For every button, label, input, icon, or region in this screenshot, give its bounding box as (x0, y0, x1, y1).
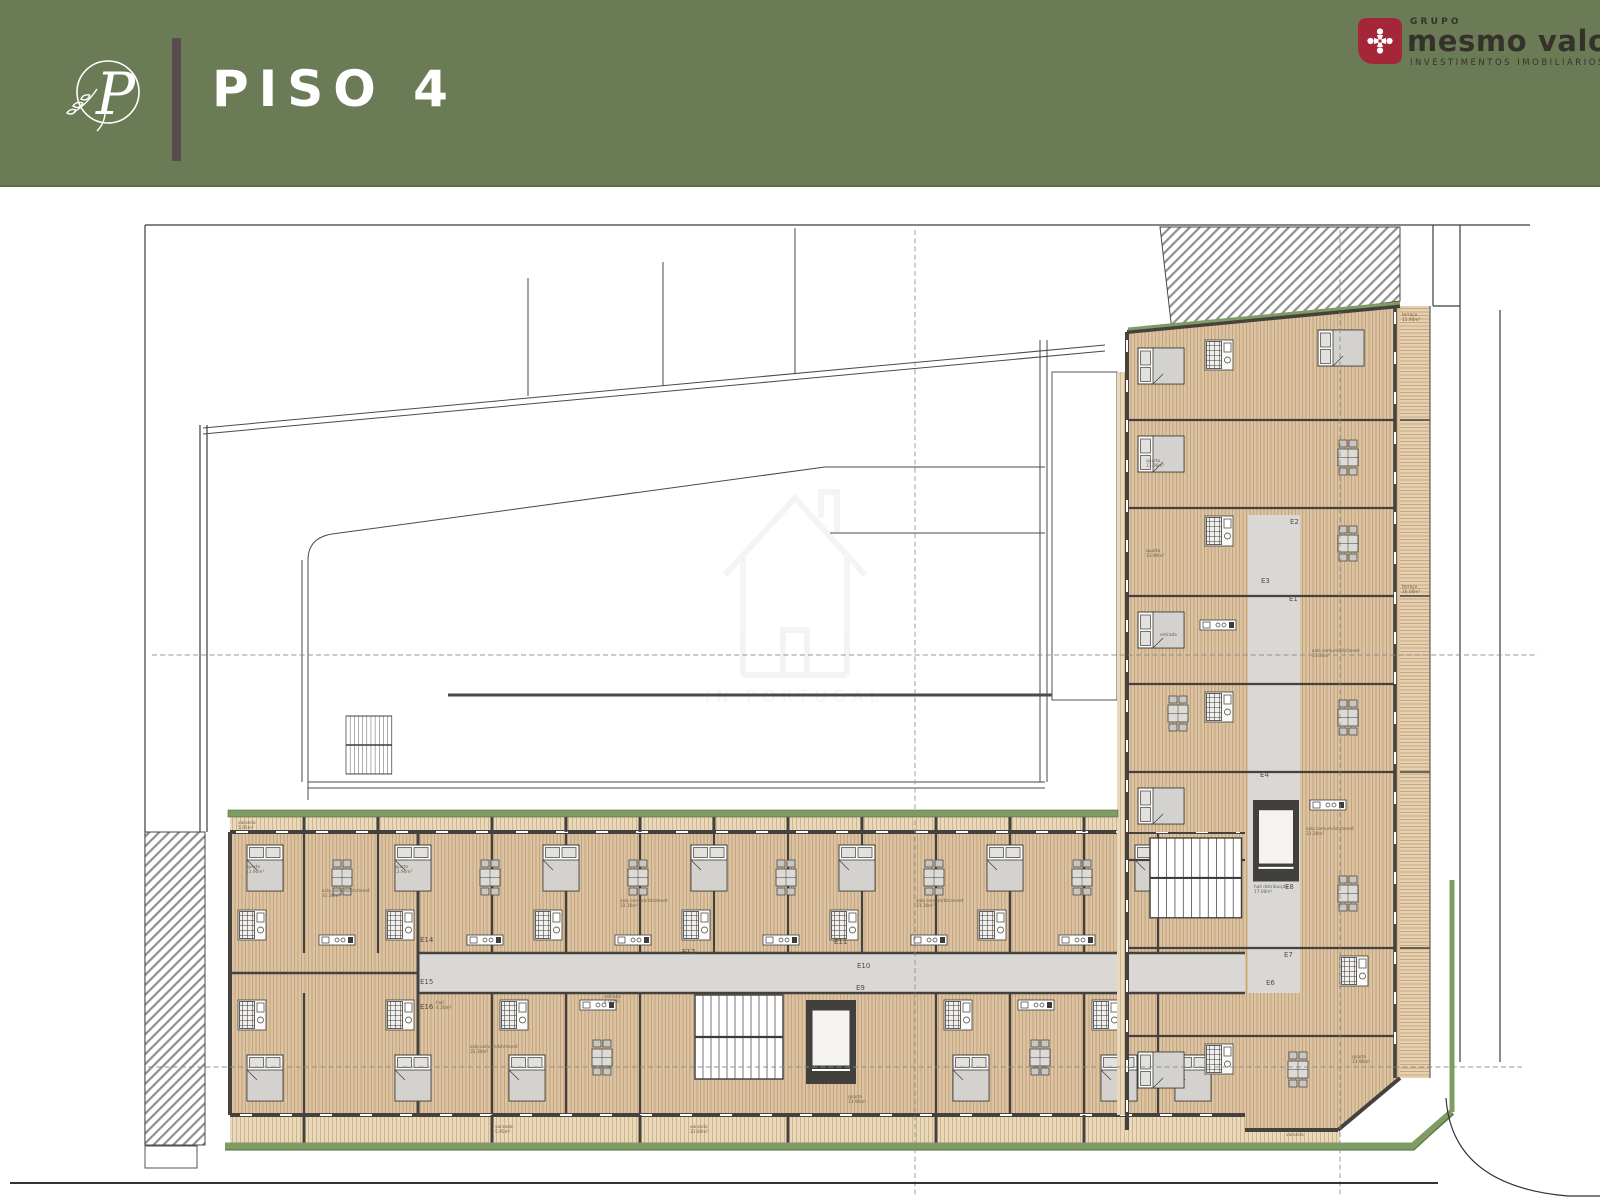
stairwell-right (1150, 838, 1242, 918)
logo-monogram: P (95, 60, 136, 128)
unit-tag: E1 (1289, 595, 1298, 603)
svg-text:entrada: entrada (1160, 632, 1177, 638)
svg-text:E16: E16 (420, 1003, 434, 1011)
watermark: IN PORTUGAL (705, 492, 885, 707)
svg-text:E7: E7 (1284, 951, 1293, 959)
page-title: PISO 4 (212, 60, 458, 118)
balcony-top (230, 817, 1118, 832)
courtyard-lines (203, 228, 1117, 800)
title-divider-bar (172, 38, 181, 161)
svg-text:E4: E4 (1260, 771, 1269, 779)
brand-name: mesmo valor (1407, 24, 1600, 58)
svg-text:E11: E11 (834, 938, 847, 946)
svg-text:E10: E10 (857, 962, 870, 970)
brand-logo: GRUPO mesmo valor INVESTIMENTOS IMOBILIÁ… (1350, 14, 1595, 74)
elevator-bottom (806, 1000, 856, 1084)
page: IN PORTUGAL (0, 0, 1600, 1200)
watermark-text: IN PORTUGAL (705, 687, 885, 707)
exterior-stairs (346, 716, 392, 774)
stairwell-bottom (695, 995, 783, 1079)
svg-text:E8: E8 (1285, 883, 1294, 891)
svg-text:E3: E3 (1261, 577, 1270, 585)
brand-tagline: INVESTIMENTOS IMOBILIÁRIOS (1410, 58, 1600, 68)
brand-flower-icon (1357, 17, 1403, 65)
svg-text:varanda5.95m²: varanda5.95m² (495, 1124, 513, 1135)
svg-text:varanda5.95m²: varanda5.95m² (238, 820, 256, 831)
svg-text:E12: E12 (682, 948, 695, 956)
svg-text:varanda: varanda (1286, 1132, 1304, 1138)
terrace-strip (1400, 306, 1430, 1078)
svg-text:E2: E2 (1290, 518, 1299, 526)
neighbour-strip-left (145, 832, 205, 1145)
elevator-right (1253, 800, 1299, 881)
svg-text:E6: E6 (1266, 979, 1275, 987)
corridor-vertical (1248, 515, 1300, 993)
svg-text:varanda31.60m²: varanda31.60m² (690, 1124, 708, 1135)
header-band: P PISO 4 (0, 0, 1600, 187)
svg-text:E9: E9 (856, 984, 865, 992)
svg-text:entrada4.00m²: entrada4.00m² (604, 994, 621, 1005)
svg-text:E14: E14 (420, 936, 434, 944)
balcony-bottom (230, 1115, 1340, 1143)
project-logo: P (52, 34, 172, 159)
svg-text:E15: E15 (420, 978, 433, 986)
